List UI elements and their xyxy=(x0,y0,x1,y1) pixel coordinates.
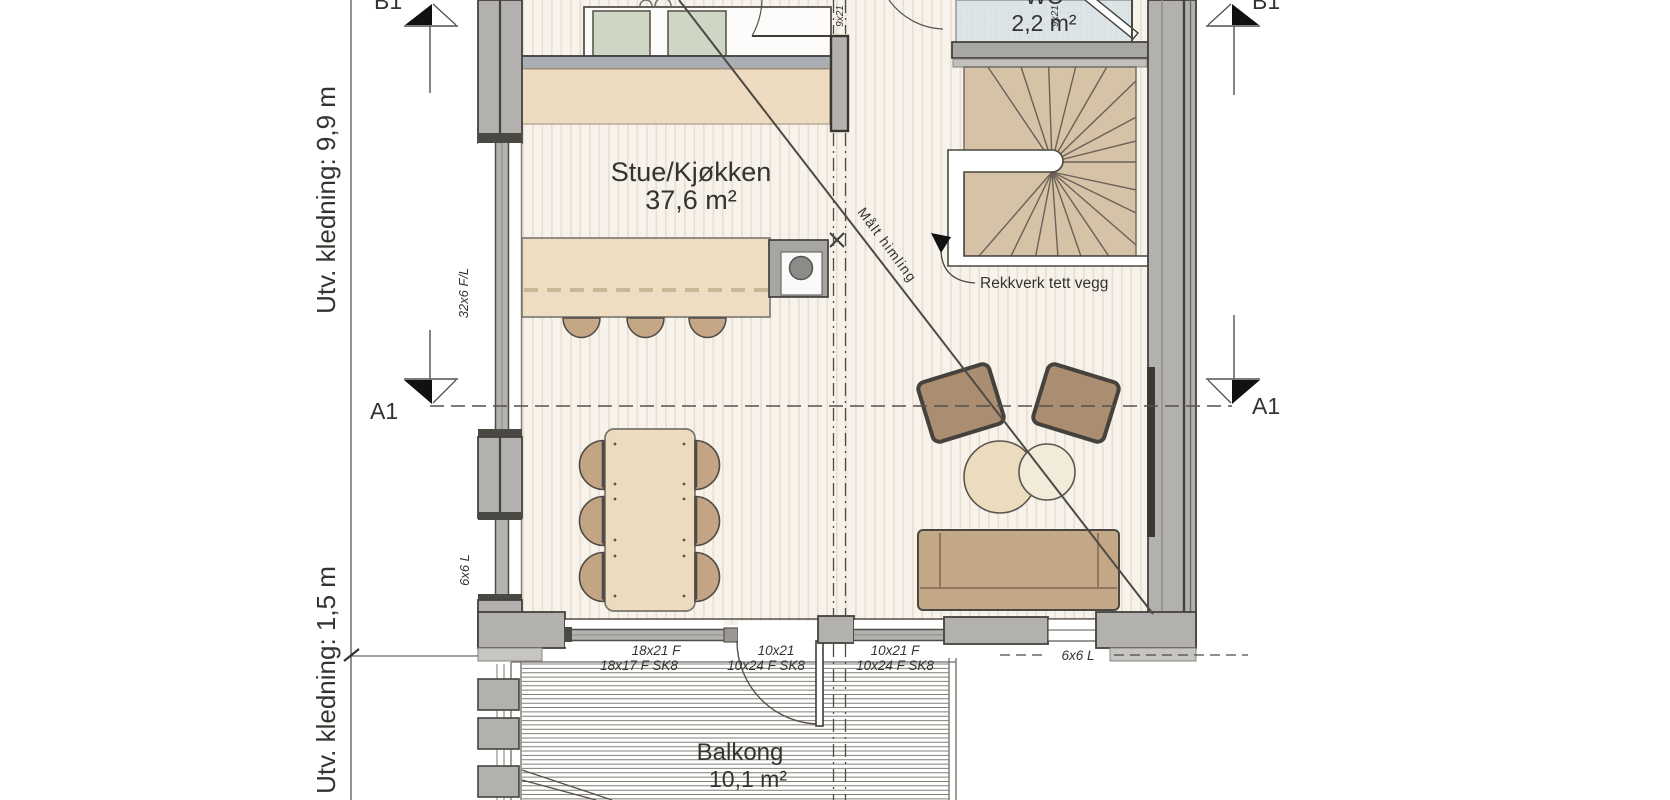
svg-text:Utv. kledning: 1,5 m: Utv. kledning: 1,5 m xyxy=(311,566,341,794)
svg-text:9x21: 9x21 xyxy=(1050,5,1061,27)
svg-text:10,1 m²: 10,1 m² xyxy=(709,766,787,792)
svg-text:B1: B1 xyxy=(1252,0,1280,14)
svg-text:B1: B1 xyxy=(374,0,402,14)
svg-text:Rekkverk tett vegg: Rekkverk tett vegg xyxy=(980,275,1108,292)
svg-text:Utv. kledning: 9,9 m: Utv. kledning: 9,9 m xyxy=(311,86,341,314)
svg-text:6x6 L: 6x6 L xyxy=(1061,648,1094,663)
svg-text:2,2 m²: 2,2 m² xyxy=(1011,10,1077,36)
svg-text:37,6 m²: 37,6 m² xyxy=(645,185,737,215)
svg-text:Balkong: Balkong xyxy=(697,739,784,766)
svg-text:18x17 F SK8: 18x17 F SK8 xyxy=(600,658,678,673)
svg-text:18x21 F: 18x21 F xyxy=(632,643,682,658)
svg-text:10x24 F SK8: 10x24 F SK8 xyxy=(727,658,805,673)
svg-text:10x24 F SK8: 10x24 F SK8 xyxy=(856,658,934,673)
svg-text:6x6 L: 6x6 L xyxy=(457,554,472,586)
svg-text:10x21: 10x21 xyxy=(758,643,795,658)
svg-text:10x21 F: 10x21 F xyxy=(871,643,921,658)
svg-text:32x6 F/L: 32x6 F/L xyxy=(456,268,471,319)
svg-text:A1: A1 xyxy=(370,398,398,424)
svg-text:Stue/Kjøkken: Stue/Kjøkken xyxy=(611,157,772,187)
svg-text:9x21: 9x21 xyxy=(835,5,846,27)
svg-text:A1: A1 xyxy=(1252,393,1280,419)
